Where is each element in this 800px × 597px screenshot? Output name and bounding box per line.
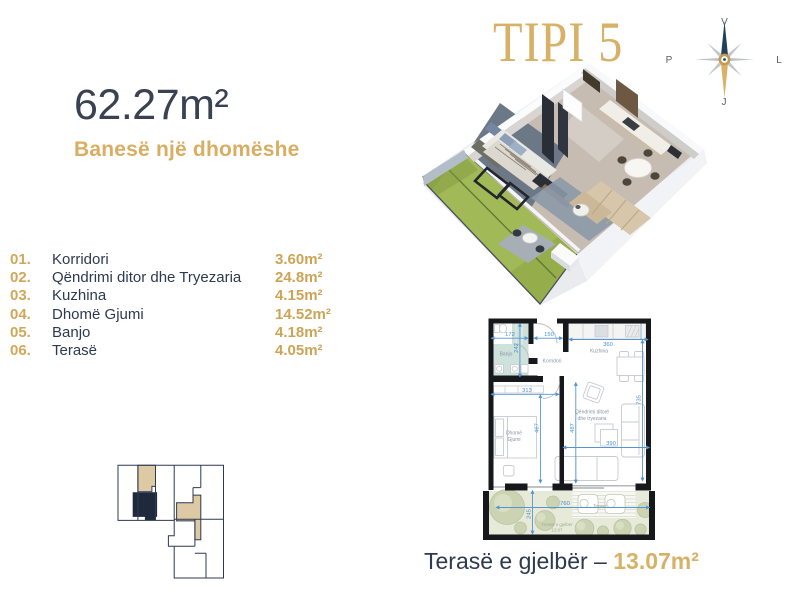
svg-text:735: 735 bbox=[637, 395, 643, 405]
svg-text:242: 242 bbox=[514, 343, 520, 353]
svg-text:467: 467 bbox=[535, 423, 541, 433]
svg-text:J: J bbox=[722, 97, 727, 108]
svg-text:760: 760 bbox=[560, 501, 570, 507]
svg-text:Banjo: Banjo bbox=[500, 352, 513, 358]
svg-text:13.07: 13.07 bbox=[552, 528, 564, 533]
svg-text:P: P bbox=[666, 55, 673, 66]
svg-text:Terasë: Terasë bbox=[593, 504, 607, 509]
svg-text:390: 390 bbox=[606, 441, 616, 447]
svg-text:487: 487 bbox=[570, 423, 576, 433]
svg-text:Dhomë: Dhomë bbox=[506, 431, 522, 437]
svg-text:Gjumi: Gjumi bbox=[507, 437, 520, 443]
svg-text:Kuzhina: Kuzhina bbox=[590, 349, 608, 355]
svg-text:Qëndrimi ditorë: Qëndrimi ditorë bbox=[575, 410, 609, 416]
svg-text:Terasë e gjelbër: Terasë e gjelbër bbox=[541, 522, 573, 527]
svg-text:245: 245 bbox=[527, 509, 533, 519]
svg-text:L: L bbox=[776, 55, 782, 66]
svg-text:Korridori: Korridori bbox=[543, 359, 562, 365]
svg-text:313: 313 bbox=[522, 388, 532, 394]
svg-text:360: 360 bbox=[603, 342, 613, 348]
svg-text:dhe tryezaria: dhe tryezaria bbox=[578, 416, 607, 422]
svg-text:V: V bbox=[721, 17, 728, 28]
svg-text:150: 150 bbox=[544, 332, 554, 338]
svg-text:172: 172 bbox=[505, 332, 515, 338]
